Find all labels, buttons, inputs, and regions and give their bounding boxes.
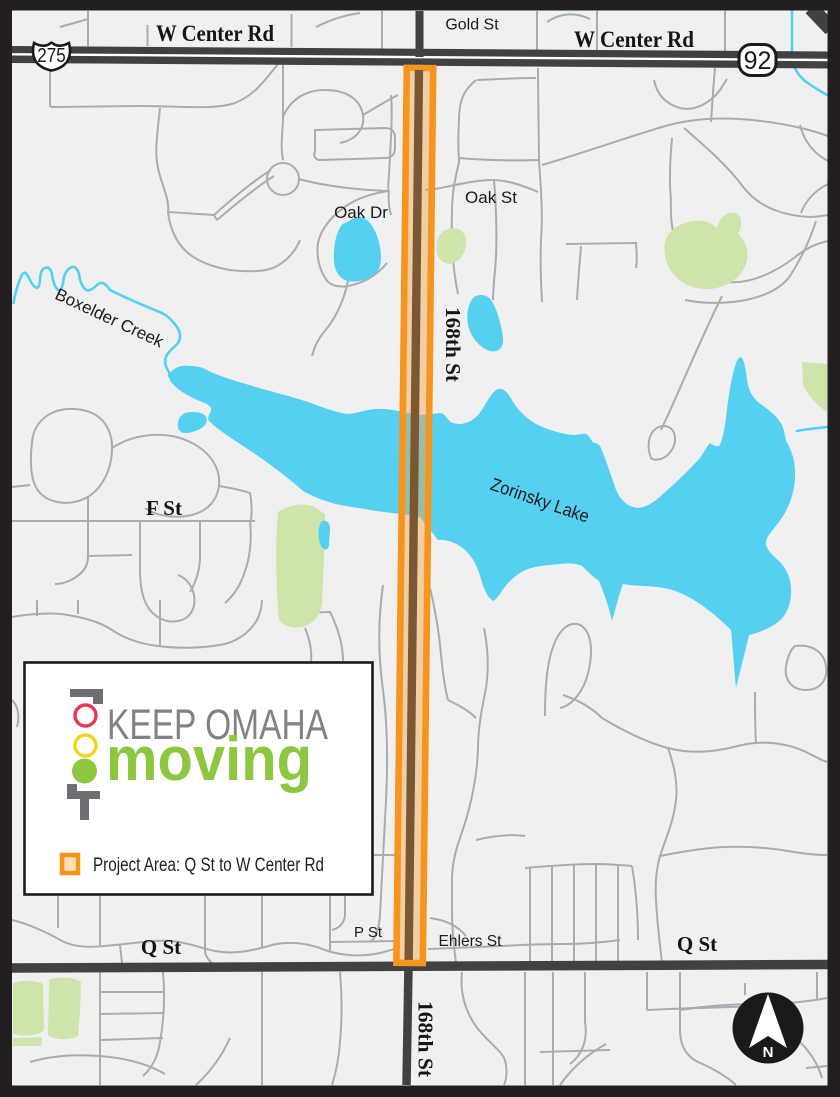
svg-text:Ehlers St: Ehlers St xyxy=(439,933,503,950)
svg-text:F St: F St xyxy=(146,496,182,520)
svg-text:Project Area: Q St to W Center: Project Area: Q St to W Center Rd xyxy=(93,854,324,876)
svg-text:168th St: 168th St xyxy=(441,307,465,382)
svg-text:N: N xyxy=(763,1044,774,1061)
svg-text:W Center Rd: W Center Rd xyxy=(156,21,274,46)
svg-text:Oak St: Oak St xyxy=(465,188,517,207)
svg-text:92: 92 xyxy=(744,47,772,75)
svg-text:P St: P St xyxy=(354,924,383,941)
svg-text:Oak Dr: Oak Dr xyxy=(334,203,388,222)
svg-text:moving: moving xyxy=(106,725,312,794)
svg-text:Q St: Q St xyxy=(677,932,717,956)
svg-text:Q St: Q St xyxy=(141,935,181,959)
svg-text:275: 275 xyxy=(37,44,66,67)
svg-text:168th St: 168th St xyxy=(414,1001,438,1077)
svg-text:W Center Rd: W Center Rd xyxy=(574,27,694,52)
svg-text:Gold St: Gold St xyxy=(445,17,499,34)
